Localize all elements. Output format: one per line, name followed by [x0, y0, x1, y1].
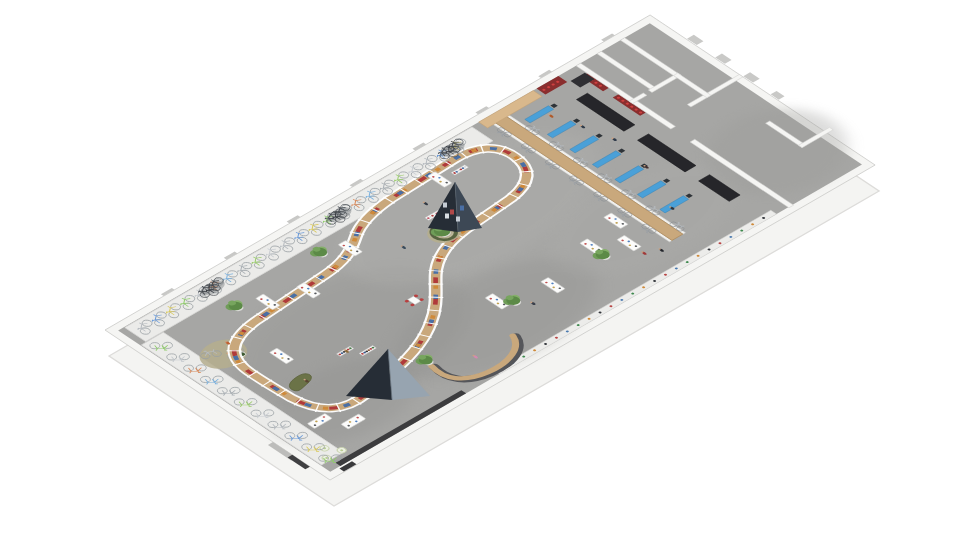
floorplan-3d-render [0, 0, 980, 560]
